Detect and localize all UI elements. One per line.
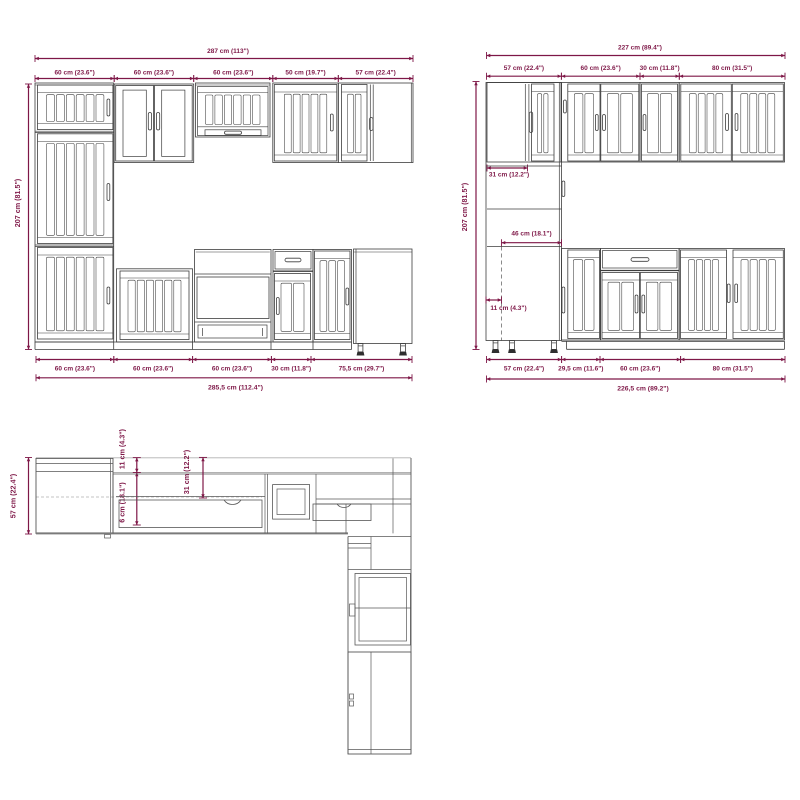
svg-text:30 cm (11.8"): 30 cm (11.8") [640, 65, 680, 72]
svg-text:46 cm (18.1"): 46 cm (18.1") [511, 231, 551, 238]
svg-text:60 cm (23.6"): 60 cm (23.6") [55, 366, 95, 373]
svg-text:80 cm (31.5"): 80 cm (31.5") [713, 366, 753, 373]
svg-text:50 cm (19.7"): 50 cm (19.7") [285, 70, 325, 77]
svg-text:31 cm (12.2"): 31 cm (12.2") [182, 449, 191, 494]
svg-text:60 cm (23.6"): 60 cm (23.6") [134, 70, 174, 77]
svg-text:30 cm (11.8"): 30 cm (11.8") [271, 366, 311, 373]
svg-text:207 cm (81.5"): 207 cm (81.5") [13, 178, 22, 227]
svg-text:60 cm (23.6"): 60 cm (23.6") [620, 366, 660, 373]
svg-text:207 cm (81.5"): 207 cm (81.5") [460, 182, 469, 231]
svg-text:60 cm (23.6"): 60 cm (23.6") [213, 70, 253, 77]
svg-text:57 cm (22.4"): 57 cm (22.4") [355, 70, 395, 77]
svg-text:57 cm (22.4"): 57 cm (22.4") [9, 473, 18, 518]
svg-text:80 cm (31.5"): 80 cm (31.5") [712, 65, 752, 72]
svg-text:227 cm (89.4"): 227 cm (89.4") [618, 45, 662, 52]
svg-text:60 cm (23.6"): 60 cm (23.6") [133, 366, 173, 373]
svg-text:57 cm (22.4"): 57 cm (22.4") [504, 366, 544, 373]
svg-text:285,5 cm (112.4"): 285,5 cm (112.4") [208, 385, 263, 392]
svg-text:11 cm (4.3"): 11 cm (4.3") [118, 428, 127, 469]
svg-text:60 cm (23.6"): 60 cm (23.6") [581, 65, 621, 72]
svg-text:31 cm (12.2"): 31 cm (12.2") [489, 172, 529, 179]
svg-text:29,5 cm (11.6"): 29,5 cm (11.6") [558, 366, 603, 373]
svg-text:226,5 cm (89.2"): 226,5 cm (89.2") [617, 386, 669, 393]
svg-text:57 cm (22.4"): 57 cm (22.4") [504, 65, 544, 72]
svg-text:287 cm (113"): 287 cm (113") [207, 48, 249, 55]
svg-text:60 cm (23.6"): 60 cm (23.6") [212, 366, 252, 373]
svg-text:60 cm (23.6"): 60 cm (23.6") [54, 70, 94, 77]
svg-text:11 cm (4.3"): 11 cm (4.3") [490, 305, 526, 312]
svg-text:75,5 cm (29.7"): 75,5 cm (29.7") [339, 366, 385, 373]
